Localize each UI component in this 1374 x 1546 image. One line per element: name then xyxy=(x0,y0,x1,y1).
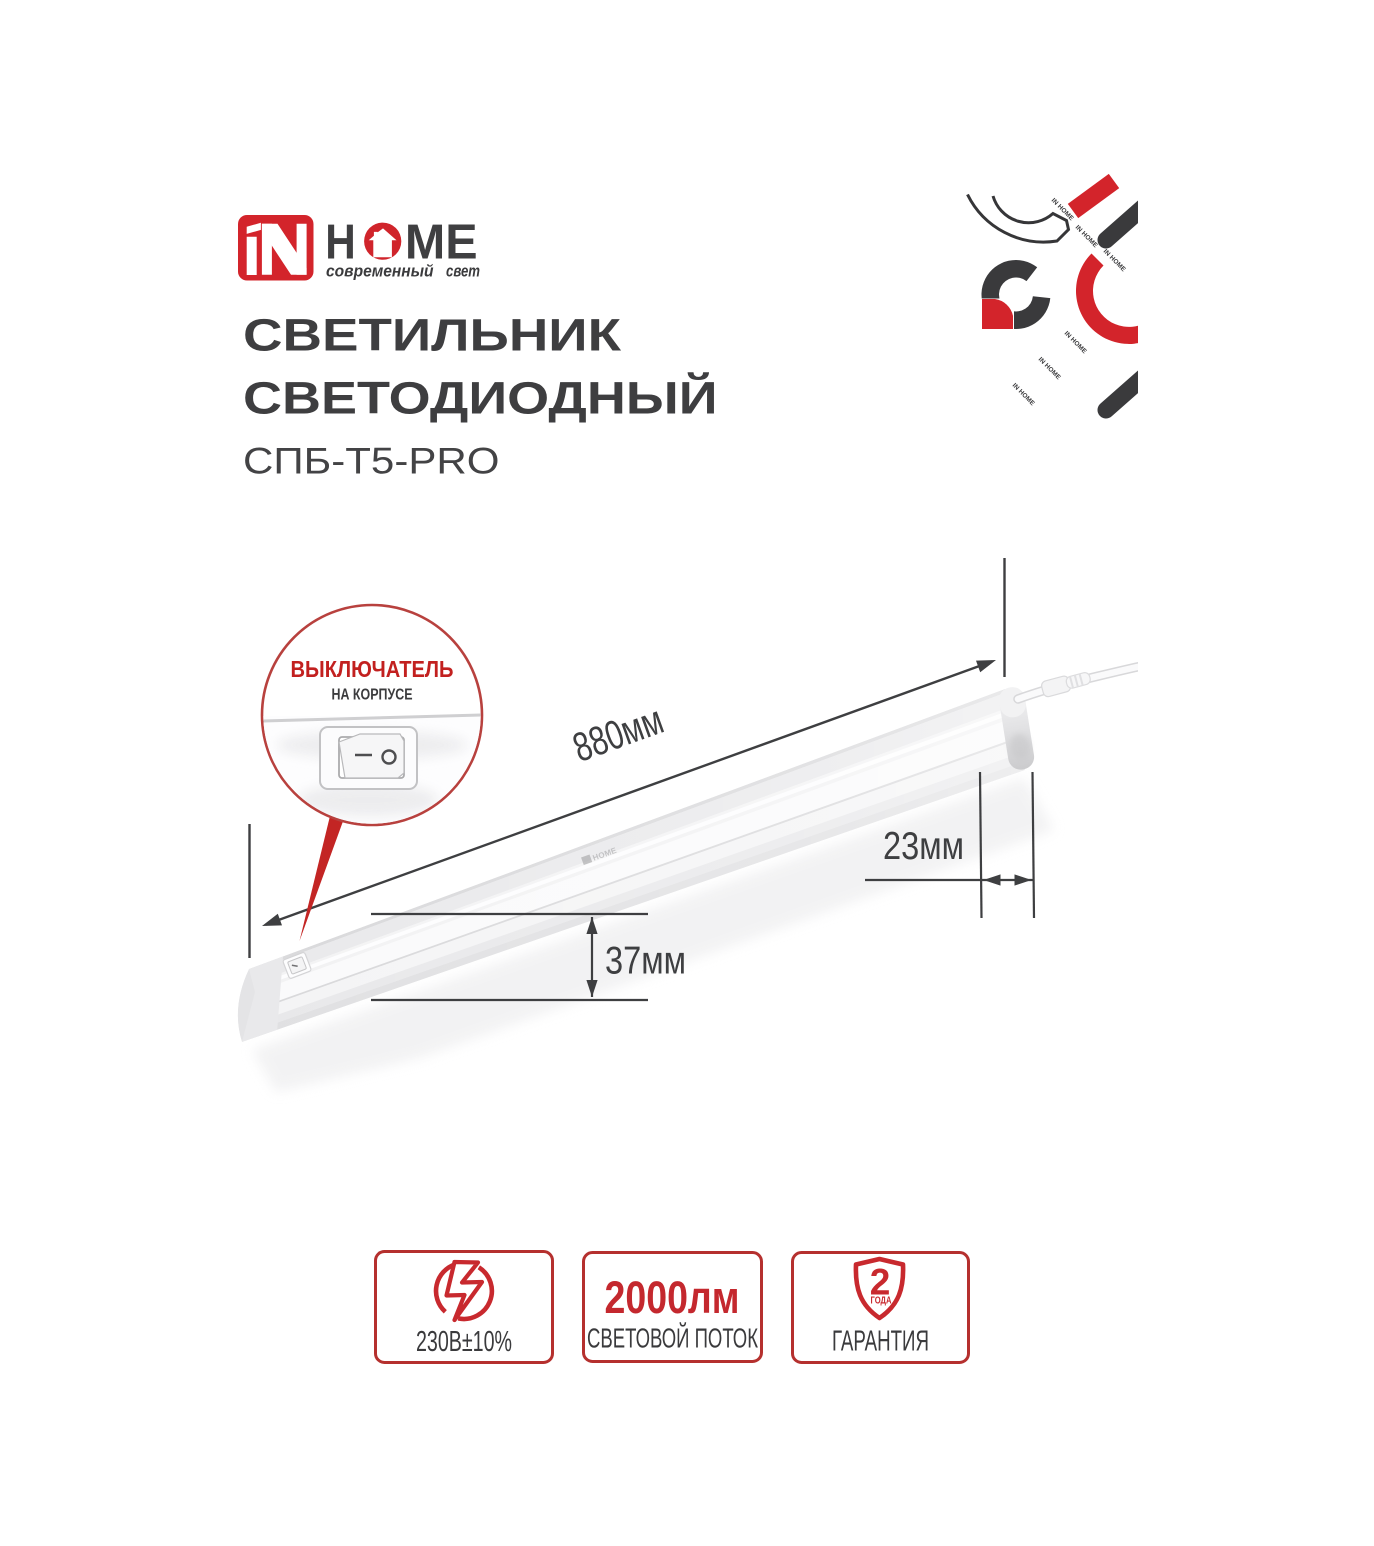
svg-text:IN HOME: IN HOME xyxy=(1037,356,1063,382)
svg-text:СВЕТОДИОДНЫЙ: СВЕТОДИОДНЫЙ xyxy=(243,373,718,424)
svg-text:СВЕТИЛЬНИК: СВЕТИЛЬНИК xyxy=(243,309,622,360)
svg-text:IN HOME: IN HOME xyxy=(1102,248,1128,274)
svg-text:IN HOME: IN HOME xyxy=(1011,382,1037,408)
svg-text:880мм: 880мм xyxy=(567,696,669,771)
svg-text:современный: современный xyxy=(326,262,434,281)
svg-text:СПБ-Т5-PRO: СПБ-Т5-PRO xyxy=(243,440,500,481)
svg-text:СВЕТОВОЙ ПОТОК: СВЕТОВОЙ ПОТОК xyxy=(587,1323,758,1354)
svg-text:IN HOME: IN HOME xyxy=(1063,330,1089,356)
svg-text:2000лм: 2000лм xyxy=(605,1272,740,1323)
svg-text:ГОДА: ГОДА xyxy=(871,1295,892,1307)
svg-text:НА КОРПУСЕ: НА КОРПУСЕ xyxy=(332,687,413,704)
svg-text:свет: свет xyxy=(446,262,480,281)
svg-text:23мм: 23мм xyxy=(883,825,964,868)
svg-text:IN HOME: IN HOME xyxy=(1074,224,1100,250)
svg-text:37мм: 37мм xyxy=(605,940,686,983)
svg-text:ВЫКЛЮЧАТЕЛЬ: ВЫКЛЮЧАТЕЛЬ xyxy=(291,656,454,682)
svg-text:230В±10%: 230В±10% xyxy=(416,1326,512,1358)
svg-text:ГАРАНТИЯ: ГАРАНТИЯ xyxy=(832,1326,929,1358)
